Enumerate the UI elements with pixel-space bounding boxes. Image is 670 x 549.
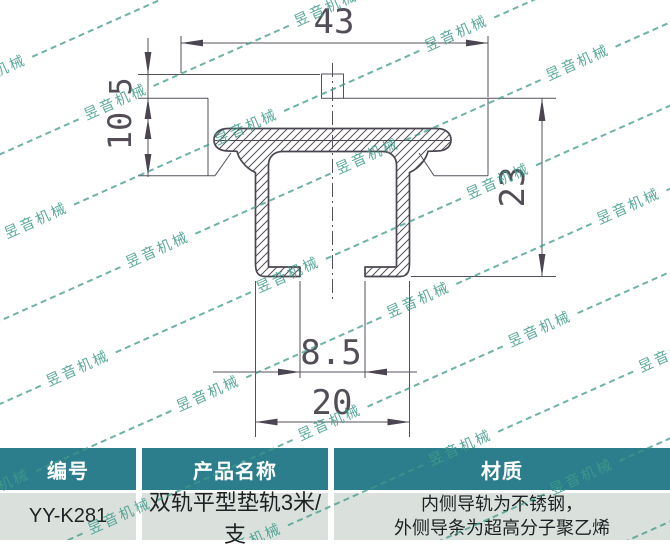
dimension-right-height (539, 98, 546, 276)
cell-product-name: 双轨平型垫轨3米/支 (142, 493, 328, 540)
table-header-material: 材质 (334, 448, 670, 490)
dimension-top-width (181, 36, 488, 97)
technical-drawing: 43 5 10 23 8.5 20 (0, 0, 670, 448)
material-line-2: 外侧导条为超高分子聚乙烯 (394, 517, 610, 540)
dim-label-5: 5 (104, 77, 139, 95)
dim-label-43: 43 (314, 2, 355, 42)
dim-label-8-5: 8.5 (300, 333, 361, 373)
dim-label-20: 20 (312, 383, 353, 423)
table-header-row: 编号 产品名称 材质 (0, 448, 670, 490)
product-spec-page: { "watermark": { "text": "昱音机械" }, "draw… (0, 0, 670, 540)
table-row: YY-K281 双轨平型垫轨3米/支 内侧导轨为不锈钢， 外侧导条为超高分子聚乙… (0, 493, 670, 540)
cell-product-code: YY-K281 (0, 493, 136, 540)
dim-label-10: 10 (101, 112, 139, 151)
material-line-1: 内侧导轨为不锈钢， (421, 493, 583, 516)
table-header-code: 编号 (0, 448, 136, 490)
dimension-left-column (145, 38, 152, 177)
product-table: 编号 产品名称 材质 YY-K281 双轨平型垫轨3米/支 内侧导轨为不锈钢， … (0, 448, 670, 540)
cell-material: 内侧导轨为不锈钢， 外侧导条为超高分子聚乙烯 (334, 493, 670, 540)
dim-label-23: 23 (493, 167, 533, 208)
